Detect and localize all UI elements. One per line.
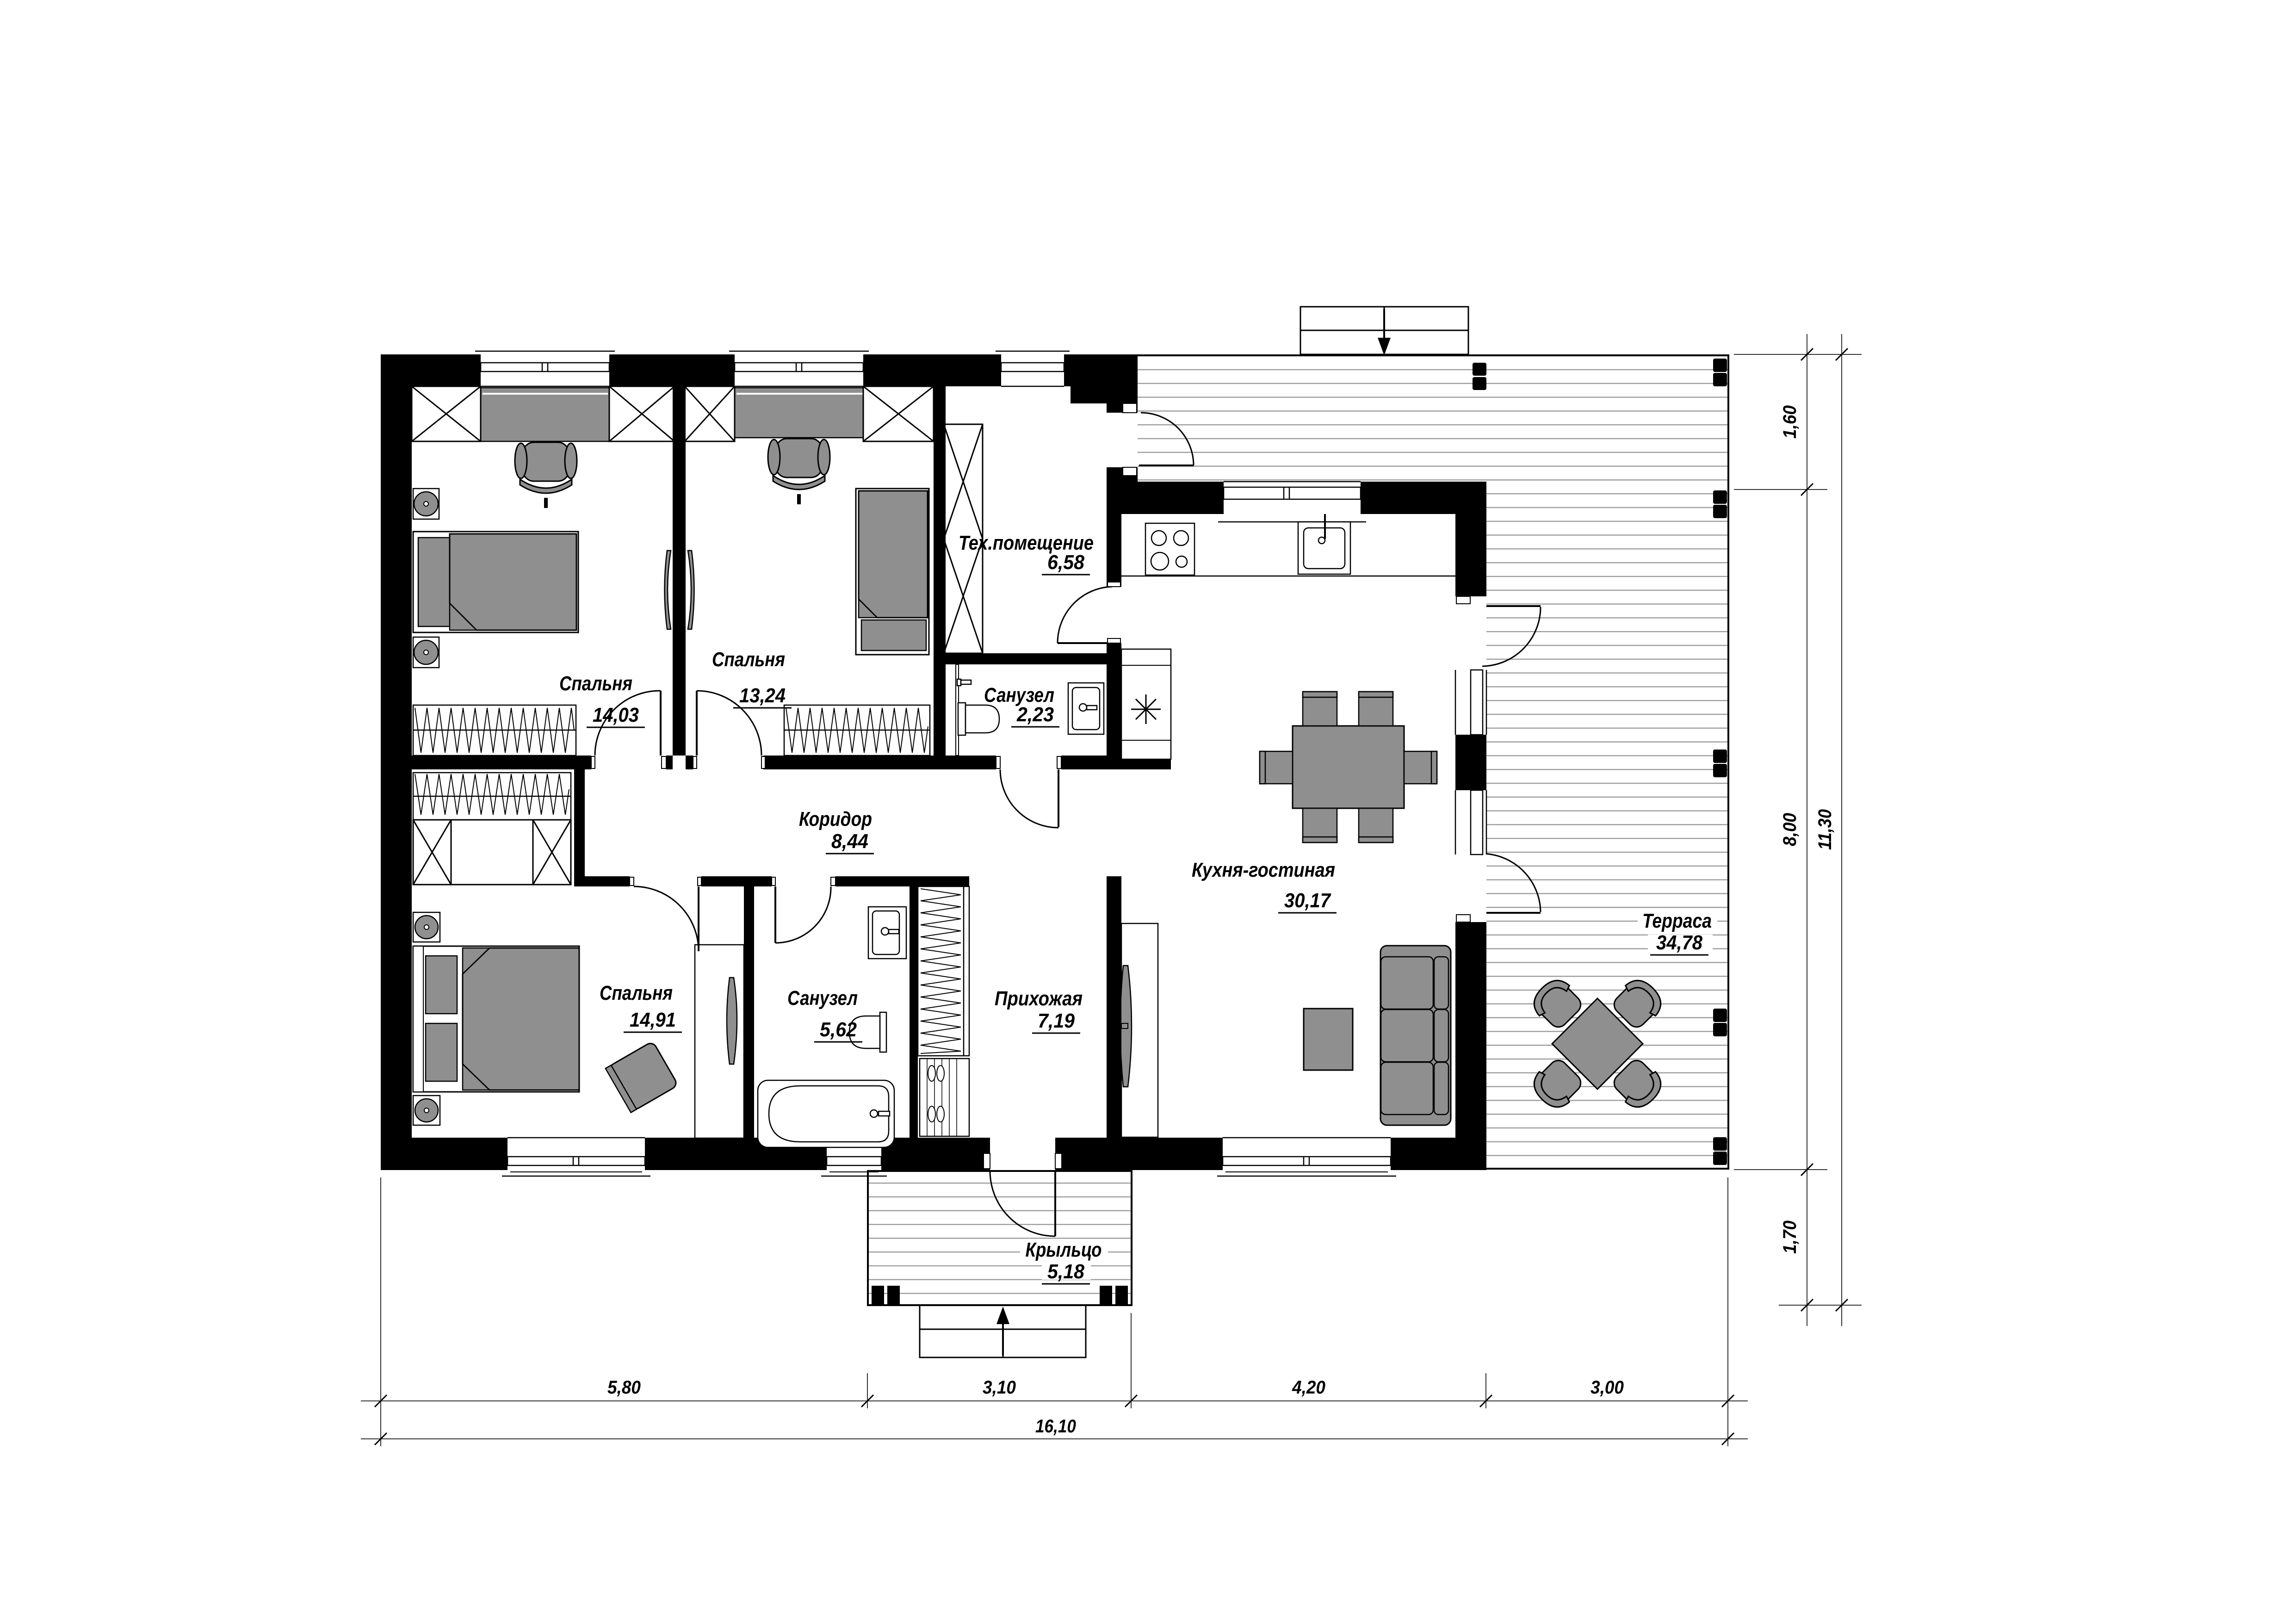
svg-text:34,78: 34,78 — [1656, 931, 1702, 954]
svg-text:Коридор: Коридор — [799, 808, 872, 830]
svg-text:2,23: 2,23 — [1016, 703, 1054, 726]
svg-text:3,10: 3,10 — [983, 1377, 1016, 1398]
svg-text:Терраса: Терраса — [1642, 910, 1712, 932]
svg-text:14,91: 14,91 — [630, 1009, 676, 1031]
svg-text:8,00: 8,00 — [1780, 813, 1800, 846]
svg-text:8,44: 8,44 — [831, 830, 868, 853]
svg-text:6,58: 6,58 — [1047, 551, 1084, 574]
svg-text:Санузел: Санузел — [787, 987, 858, 1010]
svg-text:14,03: 14,03 — [593, 704, 639, 726]
svg-text:5,62: 5,62 — [820, 1018, 857, 1041]
svg-text:30,17: 30,17 — [1284, 889, 1331, 912]
svg-text:13,24: 13,24 — [739, 684, 786, 707]
svg-text:1,60: 1,60 — [1780, 405, 1800, 439]
svg-text:11,30: 11,30 — [1815, 809, 1835, 850]
svg-text:Спальня: Спальня — [712, 648, 785, 671]
svg-text:Кухня-гостиная: Кухня-гостиная — [1192, 859, 1335, 881]
svg-text:7,19: 7,19 — [1038, 1010, 1075, 1032]
svg-text:5,80: 5,80 — [607, 1377, 641, 1398]
svg-text:1,70: 1,70 — [1780, 1220, 1800, 1254]
svg-text:Спальня: Спальня — [559, 672, 632, 695]
svg-text:16,10: 16,10 — [1035, 1416, 1076, 1437]
svg-text:Крыльцо: Крыльцо — [1026, 1239, 1102, 1261]
svg-text:Спальня: Спальня — [600, 982, 673, 1004]
svg-text:Прихожая: Прихожая — [995, 987, 1083, 1010]
svg-text:4,20: 4,20 — [1292, 1377, 1325, 1398]
svg-text:3,00: 3,00 — [1590, 1377, 1624, 1398]
svg-text:5,18: 5,18 — [1047, 1260, 1084, 1283]
